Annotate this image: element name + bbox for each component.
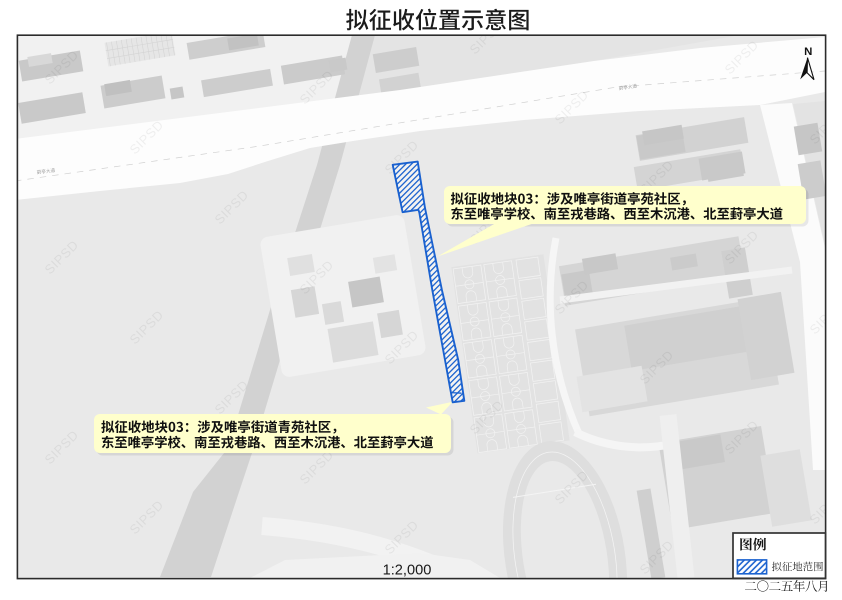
svg-text:N: N [804, 46, 812, 58]
svg-text:1:2,000: 1:2,000 [383, 563, 432, 579]
